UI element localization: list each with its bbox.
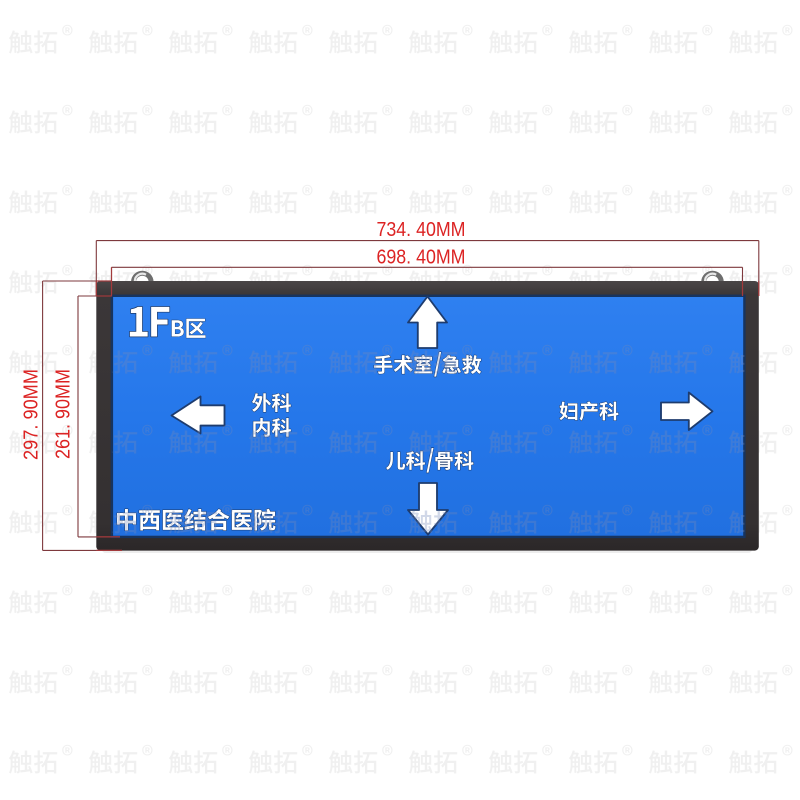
svg-text:734. 40MM: 734. 40MM [377, 219, 466, 241]
svg-text:698. 40MM: 698. 40MM [377, 246, 466, 268]
svg-text:297. 90MM: 297. 90MM [21, 369, 43, 460]
svg-text:261. 90MM: 261. 90MM [53, 369, 75, 459]
